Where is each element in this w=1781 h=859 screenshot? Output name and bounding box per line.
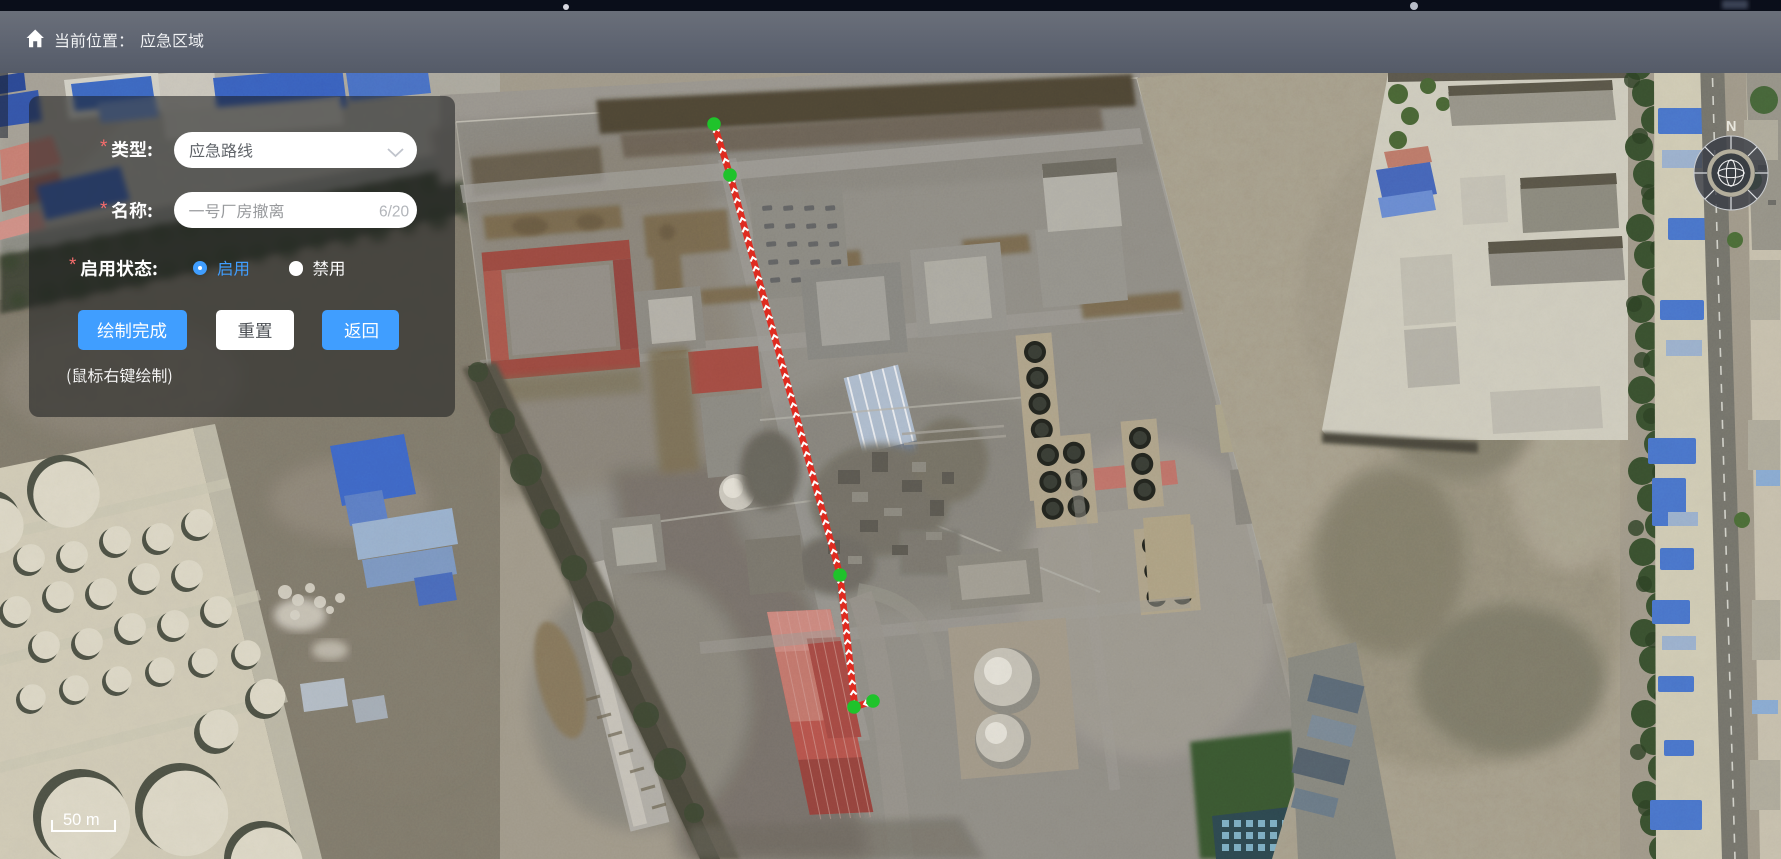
- svg-text:*: *: [69, 255, 77, 276]
- svg-text:50 m: 50 m: [63, 811, 100, 829]
- svg-text:6/20: 6/20: [379, 204, 410, 221]
- svg-text:*: *: [100, 199, 108, 220]
- svg-text:N: N: [1726, 119, 1736, 135]
- svg-text:*: *: [100, 137, 108, 158]
